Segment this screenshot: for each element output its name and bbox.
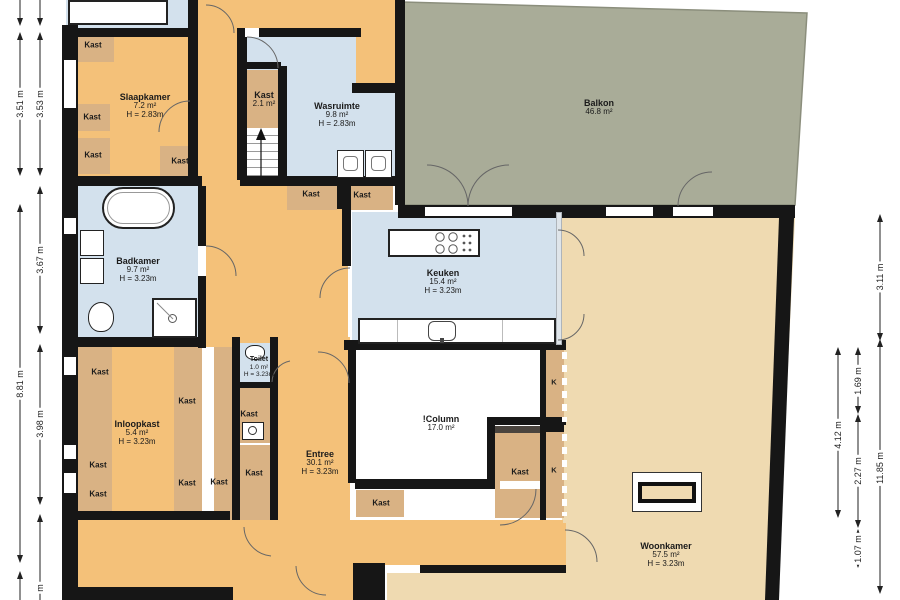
wall	[487, 425, 495, 483]
glass-door-strip	[556, 212, 562, 345]
closet-mid-2	[237, 445, 274, 520]
closet-label: Kast	[511, 468, 528, 477]
closet-label: Kast	[353, 191, 370, 200]
room-entree	[275, 337, 350, 520]
counter-seam	[502, 320, 503, 342]
dimension-label: 3.98 m	[35, 408, 45, 440]
kitchen-counter	[358, 318, 556, 344]
vanity-sink-icon	[80, 258, 104, 284]
label-wasruimte: Wasruimte9.8 m²H = 2.83m	[314, 101, 360, 129]
door-threshold	[198, 246, 206, 276]
label-column: !Column17.0 m²	[423, 414, 460, 433]
dimension-label: 3.51 m	[15, 88, 25, 120]
closet-label: Kast	[171, 157, 188, 166]
shower-tray-icon	[68, 0, 168, 25]
closet-label: Kast	[84, 151, 101, 160]
dimension-label: m	[35, 582, 45, 594]
label-badkamer: Badkamer9.7 m²H = 3.23m	[116, 256, 160, 284]
wall	[540, 348, 546, 520]
label-inloopkast: Inloopkast5.4 m²H = 3.23m	[114, 419, 159, 447]
wall	[278, 66, 287, 182]
sliding-door	[562, 352, 567, 422]
closet-label: Kast	[178, 479, 195, 488]
wall	[188, 0, 198, 180]
dimension-label: 3.11 m	[875, 262, 885, 293]
door-threshold	[673, 207, 713, 216]
wall	[353, 563, 385, 600]
floor-plan: Slaapkamer7.2 m²H = 2.83m Kast2.1 m² Was…	[0, 0, 900, 600]
closet-label: Kast	[83, 113, 100, 122]
kitchen-island	[388, 229, 480, 257]
dimension-label: 4.12 m	[833, 419, 843, 451]
wall	[237, 382, 275, 388]
label-kast-21: Kast2.1 m²	[253, 90, 276, 109]
wall	[62, 337, 206, 347]
vanity-sink-icon	[80, 230, 104, 256]
label-keuken: Keuken15.4 m²H = 3.23m	[424, 268, 461, 296]
wall	[232, 337, 240, 520]
closet-label: Kast	[84, 41, 101, 50]
label-balkon: Balkon46.8 m²	[584, 98, 614, 117]
dimension-label: 8.81 m	[15, 368, 25, 400]
closet-label: Kast	[240, 410, 257, 419]
wall	[243, 62, 281, 69]
wall	[62, 176, 202, 186]
dimension-label: 1.69 m	[853, 365, 863, 397]
toilet-icon	[88, 302, 114, 332]
window	[64, 60, 76, 108]
window	[64, 357, 76, 375]
k-closet-label: K	[551, 378, 556, 387]
label-entree: Entree30.1 m²H = 3.23m	[301, 449, 338, 477]
wall	[62, 28, 192, 37]
wall	[395, 0, 405, 205]
woonkamer-right-wall	[765, 218, 794, 600]
hall-left-corridor	[198, 0, 237, 180]
wall	[78, 511, 230, 520]
dimension-label: 3.67 m	[35, 244, 45, 276]
closet-label: Kast	[91, 368, 108, 377]
dryer-drum-icon	[371, 156, 386, 171]
wall	[348, 350, 356, 483]
stairs	[245, 128, 278, 180]
dimension-label: 1.07 m	[853, 533, 863, 565]
entree-bottom-right	[355, 520, 563, 565]
closet-label: Kast	[178, 397, 195, 406]
dimension-label: 3.53 m	[35, 88, 45, 120]
window	[64, 445, 76, 459]
wall	[420, 565, 566, 573]
window	[64, 218, 76, 234]
wall	[62, 25, 78, 600]
sliding-door	[562, 434, 567, 516]
label-woonkamer: Woonkamer57.5 m²H = 3.23m	[640, 541, 691, 569]
wall	[545, 424, 564, 432]
k-closet-label: K	[551, 466, 556, 475]
wall	[342, 178, 351, 266]
window	[64, 473, 76, 493]
counter-seam	[397, 320, 398, 342]
shower-drain-icon	[168, 314, 177, 323]
bathtub-inner-icon	[107, 192, 170, 224]
washer-drum-icon	[343, 156, 358, 171]
faucet-icon	[440, 338, 444, 343]
wall	[237, 28, 247, 180]
door-threshold	[500, 481, 540, 489]
dimension-label: 2.27 m	[853, 455, 863, 487]
closet-label: Kast	[89, 461, 106, 470]
wall	[355, 479, 495, 489]
door-threshold	[606, 207, 653, 216]
wall	[243, 28, 361, 37]
closet-label: Kast	[245, 469, 262, 478]
door-threshold	[245, 28, 259, 37]
label-slaapkamer: Slaapkamer7.2 m²H = 2.83m	[120, 92, 171, 120]
wall	[337, 183, 343, 209]
shaft	[202, 347, 214, 512]
closet-label: Kast	[302, 190, 319, 199]
closet-label: Kast	[89, 490, 106, 499]
closet-label: Kast	[372, 499, 389, 508]
door-threshold	[425, 207, 512, 216]
dimension-label: 11.85 m	[875, 450, 885, 486]
hall-patch	[356, 0, 395, 88]
sideboard-inner-icon	[638, 482, 696, 503]
label-toilet: Toilet1.0 m²H = 3.23m	[244, 356, 274, 378]
closet-label: Kast	[210, 478, 227, 487]
wall	[62, 587, 233, 600]
boiler-dial-icon	[248, 426, 257, 435]
